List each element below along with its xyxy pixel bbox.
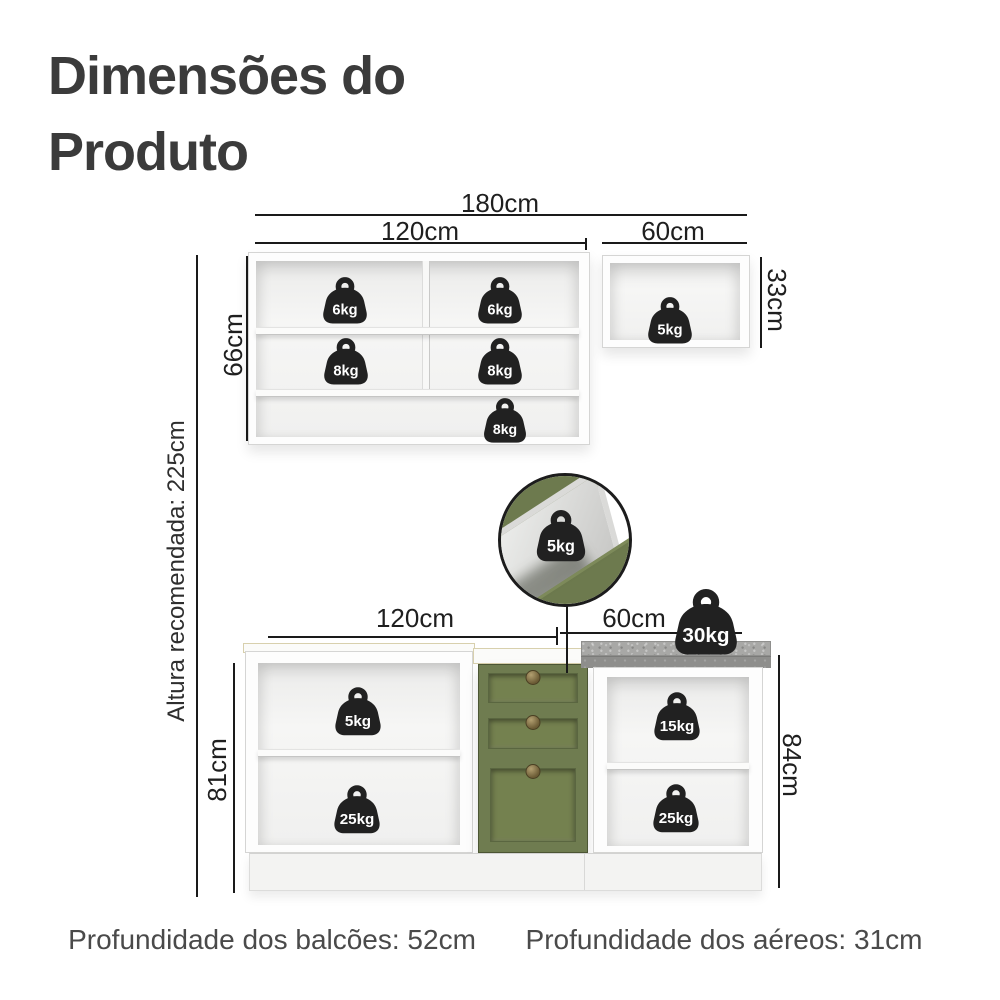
weight-icon: 25kg — [330, 785, 384, 836]
depth-note-wall-cabinets: Profundidade dos aéreos: 31cm — [526, 924, 923, 956]
weight-icon: 5kg — [331, 687, 385, 738]
drawer-2 — [479, 710, 587, 758]
dim-lower-right-height-line — [778, 655, 780, 888]
upper-wall-cabinet-120 — [248, 252, 590, 445]
upper-cabinet-interior — [256, 261, 579, 437]
page-title: Dimensões do Produto — [48, 38, 488, 190]
recommended-height-line — [196, 255, 198, 897]
weight-icon: 6kg — [474, 277, 526, 326]
svg-text:25kg: 25kg — [340, 811, 375, 828]
dim-upper-left-width-line — [255, 242, 587, 244]
dim-lower-left-width-line — [268, 636, 556, 638]
weight-icon: 8kg — [320, 338, 372, 387]
weight-icon: 8kg — [474, 338, 526, 387]
svg-text:8kg: 8kg — [487, 364, 512, 380]
weight-icon: 6kg — [319, 277, 371, 326]
weight-icon: 5kg — [644, 297, 696, 346]
dim-tick — [556, 627, 558, 645]
svg-text:5kg: 5kg — [547, 537, 575, 555]
depth-note-counters: Profundidade dos balcões: 52cm — [68, 924, 476, 956]
base-cabinet-60-shelf — [607, 762, 749, 770]
svg-text:5kg: 5kg — [345, 713, 371, 730]
upper-cabinet-shelf-2 — [256, 389, 579, 397]
dim-upper-right-height-label: 33cm — [763, 230, 791, 370]
dim-lower-right-width-label: 60cm — [602, 603, 666, 634]
dim-upper-right-width-line — [602, 242, 747, 244]
dim-upper-height-label: 66cm — [219, 275, 247, 415]
weight-icon: 15kg — [650, 692, 704, 743]
drawer-1 — [479, 665, 587, 712]
dim-lower-left-height-line — [233, 663, 235, 893]
dim-lower-left-width-label: 120cm — [376, 603, 454, 634]
drawer-3 — [479, 756, 587, 852]
svg-text:5kg: 5kg — [657, 323, 682, 339]
drawer-knob — [526, 670, 541, 685]
plinth — [249, 853, 762, 891]
recommended-height-label: Altura recomendada: 225cm — [163, 406, 191, 736]
callout-leader-line — [566, 606, 568, 673]
drawer-unit — [478, 664, 588, 853]
weight-icon: 5kg — [532, 510, 590, 564]
svg-text:30kg: 30kg — [682, 624, 729, 647]
weight-icon: 25kg — [649, 784, 703, 835]
product-dimensions-infographic: Dimensões do Produto 180cm 120cm 60cm Al… — [0, 0, 1000, 1000]
dim-lower-right-height-label: 84cm — [778, 695, 806, 835]
svg-text:6kg: 6kg — [332, 303, 357, 319]
svg-text:8kg: 8kg — [333, 364, 358, 380]
dim-tick — [585, 238, 587, 250]
svg-text:8kg: 8kg — [493, 421, 517, 437]
upper-cabinet-shelf-1 — [256, 327, 579, 335]
plinth-seam — [584, 854, 585, 890]
drawer-unit-countertop — [473, 648, 585, 664]
dim-upper-right-height-line — [760, 257, 762, 348]
dim-lower-left-height-label: 81cm — [203, 700, 231, 840]
weight-icon: 30kg — [669, 589, 743, 658]
svg-text:25kg: 25kg — [659, 810, 694, 827]
drawer-knob — [526, 764, 541, 779]
svg-text:6kg: 6kg — [487, 303, 512, 319]
base-cabinet-shelf — [258, 749, 460, 757]
weight-icon: 8kg — [480, 398, 530, 445]
drawer-panel — [490, 768, 576, 842]
drawer-knob — [526, 715, 541, 730]
svg-text:15kg: 15kg — [660, 718, 695, 735]
